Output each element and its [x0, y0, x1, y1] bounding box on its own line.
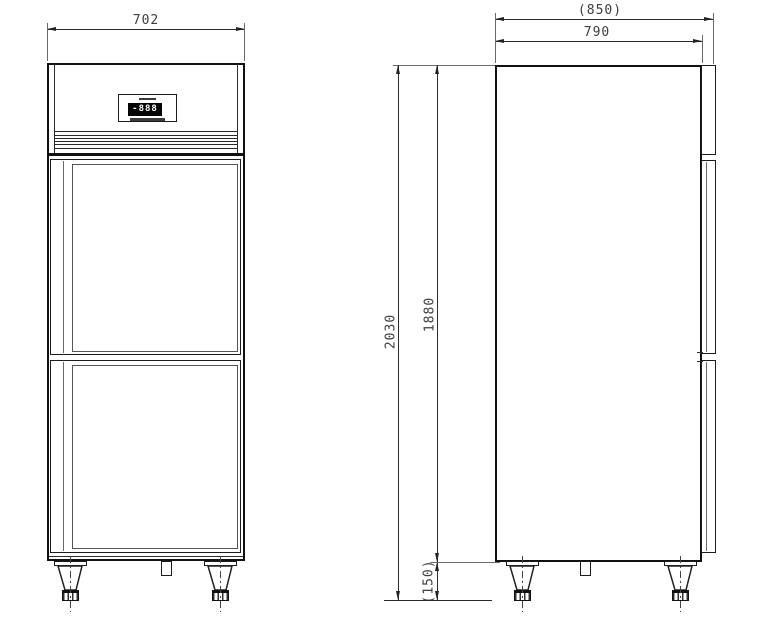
- side-height-overall-dim-label: 2030: [384, 302, 399, 362]
- top-panel-divider: [47, 153, 245, 156]
- dim-arrow-icon: [435, 562, 439, 571]
- side-height-body-dim-line: [437, 65, 438, 562]
- side-bottom-extension-line: [430, 562, 500, 563]
- door-gasket-step: [697, 361, 703, 362]
- technical-drawing-canvas: 702 -888 (850) 790: [0, 0, 784, 626]
- lower-door-hinge-line: [63, 362, 64, 551]
- dim-arrow-icon: [396, 591, 400, 600]
- door-gasket-step: [697, 352, 703, 353]
- side-depth-overall-dim-label: (850): [570, 3, 630, 18]
- side-cabinet-outline: [495, 65, 702, 562]
- controller-panel: -888: [118, 94, 177, 122]
- side-dim-extension-line: [495, 13, 496, 63]
- dim-arrow-icon: [435, 65, 439, 74]
- dim-arrow-icon: [396, 65, 400, 74]
- side-depth-overall-dim-line: [495, 19, 713, 20]
- dim-arrow-icon: [704, 17, 713, 21]
- front-dim-extension-line: [47, 23, 48, 61]
- dim-arrow-icon: [693, 39, 702, 43]
- lower-door-inner-panel: [72, 365, 238, 549]
- front-bottom-inner-line: [49, 556, 243, 557]
- side-lower-door-profile: [701, 360, 716, 553]
- side-top-extension-line: [393, 65, 497, 66]
- side-depth-body-dim-line: [495, 41, 702, 42]
- front-drain-tab: [161, 561, 172, 576]
- leg-centerline: [522, 556, 523, 612]
- leg-centerline: [70, 556, 71, 612]
- dim-arrow-icon: [47, 27, 56, 31]
- side-lower-door-inner-line: [706, 362, 707, 551]
- dim-arrow-icon: [435, 591, 439, 600]
- ground-extension-line: [384, 600, 492, 601]
- vent-line: [54, 148, 238, 149]
- side-depth-body-dim-label: 790: [567, 25, 627, 40]
- side-dim-extension-line: [713, 13, 714, 64]
- upper-door-inner-panel: [72, 164, 238, 352]
- side-height-overall-dim-line: [398, 65, 399, 600]
- leg-centerline: [220, 556, 221, 612]
- upper-door-hinge-line: [63, 161, 64, 353]
- vent-line: [54, 141, 238, 142]
- vent-line: [54, 138, 238, 139]
- front-dim-extension-line: [244, 23, 245, 61]
- vent-line: [54, 135, 238, 136]
- dim-arrow-icon: [495, 39, 504, 43]
- controller-top-label-mark: [139, 98, 156, 100]
- side-dim-extension-line: [702, 35, 703, 63]
- side-height-body-dim-label: 1880: [423, 285, 438, 345]
- side-upper-door-profile: [701, 160, 716, 354]
- side-top-panel-edge: [701, 65, 716, 155]
- front-width-dim-label: 702: [116, 13, 176, 28]
- dim-arrow-icon: [495, 17, 504, 21]
- side-drain-tab: [580, 561, 591, 576]
- vent-line: [54, 144, 238, 145]
- controller-brand-mark: [130, 118, 165, 121]
- front-width-dim-line: [47, 29, 245, 30]
- leg-centerline: [680, 556, 681, 612]
- side-upper-door-inner-line: [706, 162, 707, 352]
- vent-line: [54, 131, 238, 132]
- temperature-display[interactable]: -888: [128, 103, 162, 116]
